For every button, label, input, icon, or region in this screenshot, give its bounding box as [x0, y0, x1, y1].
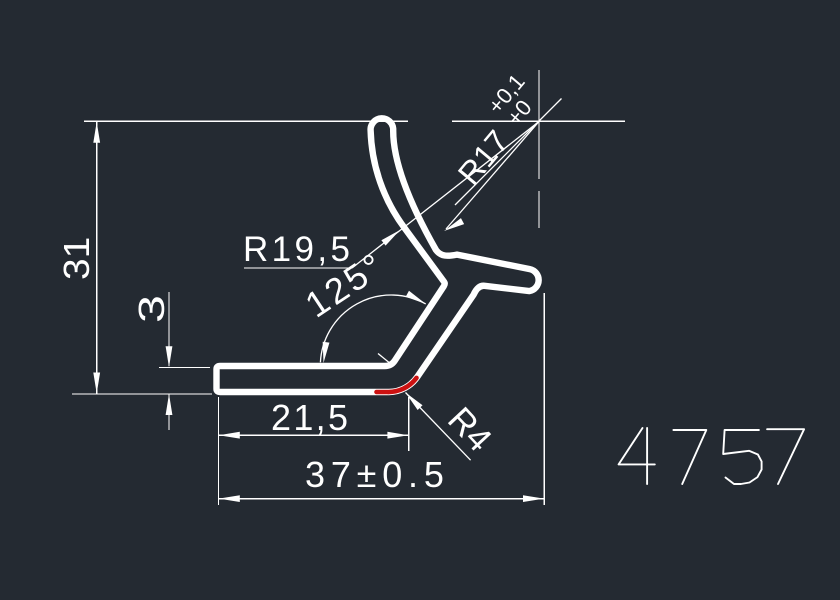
svg-text:3: 3 — [132, 295, 172, 323]
svg-text:31: 31 — [56, 237, 96, 280]
svg-text:21,5: 21,5 — [271, 397, 350, 438]
svg-text:R19,5: R19,5 — [243, 230, 353, 269]
svg-text:37±0.5: 37±0.5 — [305, 454, 450, 495]
